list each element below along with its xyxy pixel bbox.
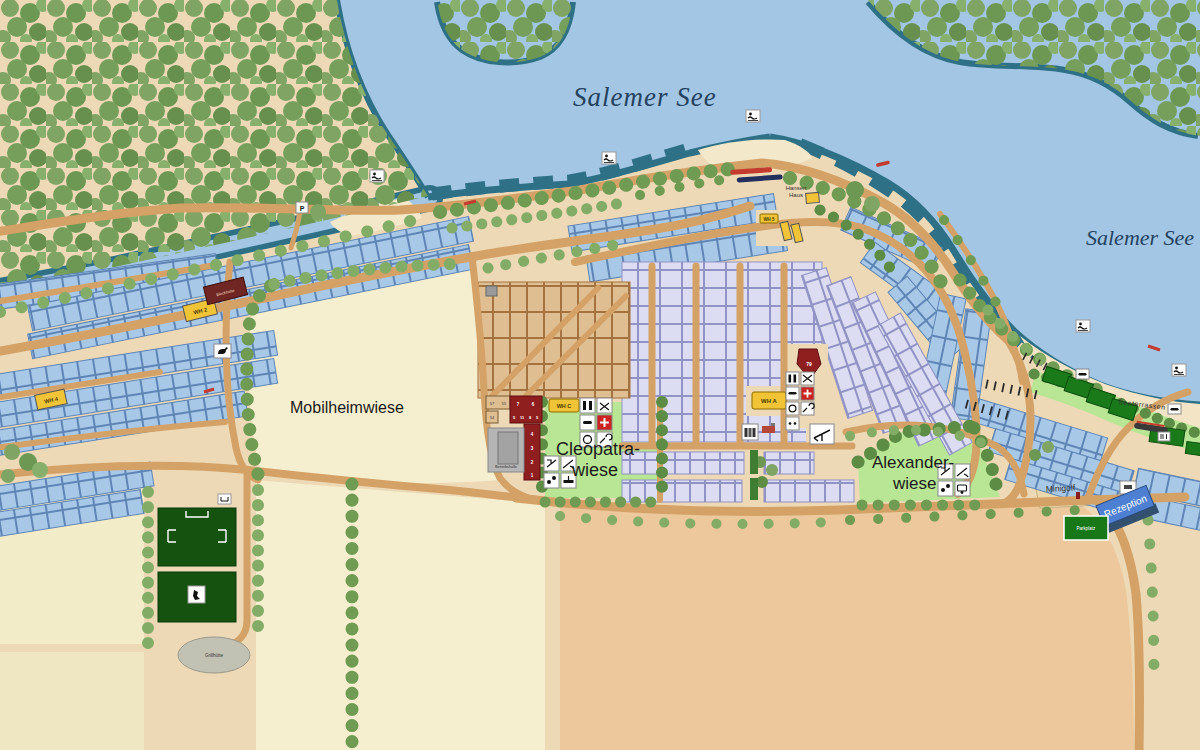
tree	[1029, 449, 1041, 461]
swimmer-icon	[1172, 364, 1186, 376]
info-glyph	[1124, 485, 1132, 489]
swimmer-icon	[746, 110, 760, 122]
parking-letter: P	[300, 205, 305, 212]
laundry-icon	[786, 402, 799, 415]
parking-icon: P	[296, 202, 308, 213]
minigolf-label: Minigolf	[1046, 482, 1076, 494]
accommodation-icon	[1076, 369, 1089, 379]
wc-icon	[580, 398, 595, 413]
field-center-cream	[256, 480, 545, 750]
swimmer-icon	[1076, 320, 1090, 332]
field-right-orange	[560, 503, 1134, 750]
swimmer-icon	[602, 152, 616, 164]
hedge	[750, 450, 758, 474]
lake-label-right: Salemer See	[1086, 225, 1194, 250]
campground-map: Grillhütte 57 55 54 7 6 5 11 8 5 4 3 2 1…	[0, 0, 1200, 750]
cleopatra-label-1: Cleopatra-	[556, 439, 640, 459]
grillhuette-label: Grillhütte	[205, 653, 224, 658]
field-left-2	[0, 652, 144, 750]
utility-box	[486, 286, 497, 296]
chemical-toilet-icon	[786, 417, 799, 430]
cleopatra-label-2: wiese	[571, 460, 618, 480]
tree	[32, 462, 48, 478]
betriebshalle-inner	[498, 432, 518, 464]
tree	[846, 181, 864, 199]
restaurant-icon	[1158, 432, 1170, 441]
service-complex: 57 55 54 7 6 5 11 8 5 4 3 2 1 Betriebsha…	[486, 396, 542, 480]
tree	[1042, 441, 1054, 453]
tan-unit-number: 57	[490, 401, 495, 406]
tree	[766, 464, 778, 476]
plot-row	[622, 452, 744, 474]
accommodation-icon	[1168, 404, 1181, 414]
minigolf-marker	[1076, 492, 1080, 499]
tree	[864, 196, 880, 212]
wh5-label: WH 5	[763, 217, 775, 222]
tan-unit-number: 55	[502, 401, 507, 406]
playground-icon	[597, 398, 612, 413]
wc-icon	[786, 372, 799, 385]
betriebshalle-label: Betriebshalle	[495, 465, 517, 469]
pentagon-number: 79	[806, 361, 812, 367]
mobilheimwiese-label: Mobilheimwiese	[290, 399, 404, 416]
swimmer-icon	[370, 170, 384, 182]
recycling-icon	[742, 424, 758, 440]
tree	[1, 469, 15, 483]
hansen-haus-building	[806, 192, 820, 203]
tree	[4, 444, 20, 460]
boules-icon	[544, 473, 559, 488]
playground-area-icon	[810, 424, 834, 444]
tan-unit-number: 54	[490, 415, 495, 420]
parkplatz-label: Parkplatz	[1077, 526, 1097, 531]
hansen-haus-label: Hansen	[786, 185, 807, 191]
hansen-haus-label2: Haus	[789, 192, 803, 198]
goal-icon	[218, 494, 231, 504]
lake-label-center: Salemer See	[573, 82, 717, 112]
plot-grid-mobilehome	[478, 282, 630, 398]
plot-row	[764, 480, 854, 502]
wha-label: WH A	[761, 398, 777, 404]
alexander-label-1: Alexander-	[872, 453, 954, 472]
whc-label: WH C	[557, 403, 572, 409]
alexander-label-2: wiese	[892, 474, 936, 493]
hedge	[750, 478, 758, 500]
swan-icon	[214, 344, 231, 358]
tree	[310, 204, 326, 220]
boules-icon	[938, 481, 953, 496]
map-canvas: Grillhütte 57 55 54 7 6 5 11 8 5 4 3 2 1…	[0, 0, 1200, 750]
